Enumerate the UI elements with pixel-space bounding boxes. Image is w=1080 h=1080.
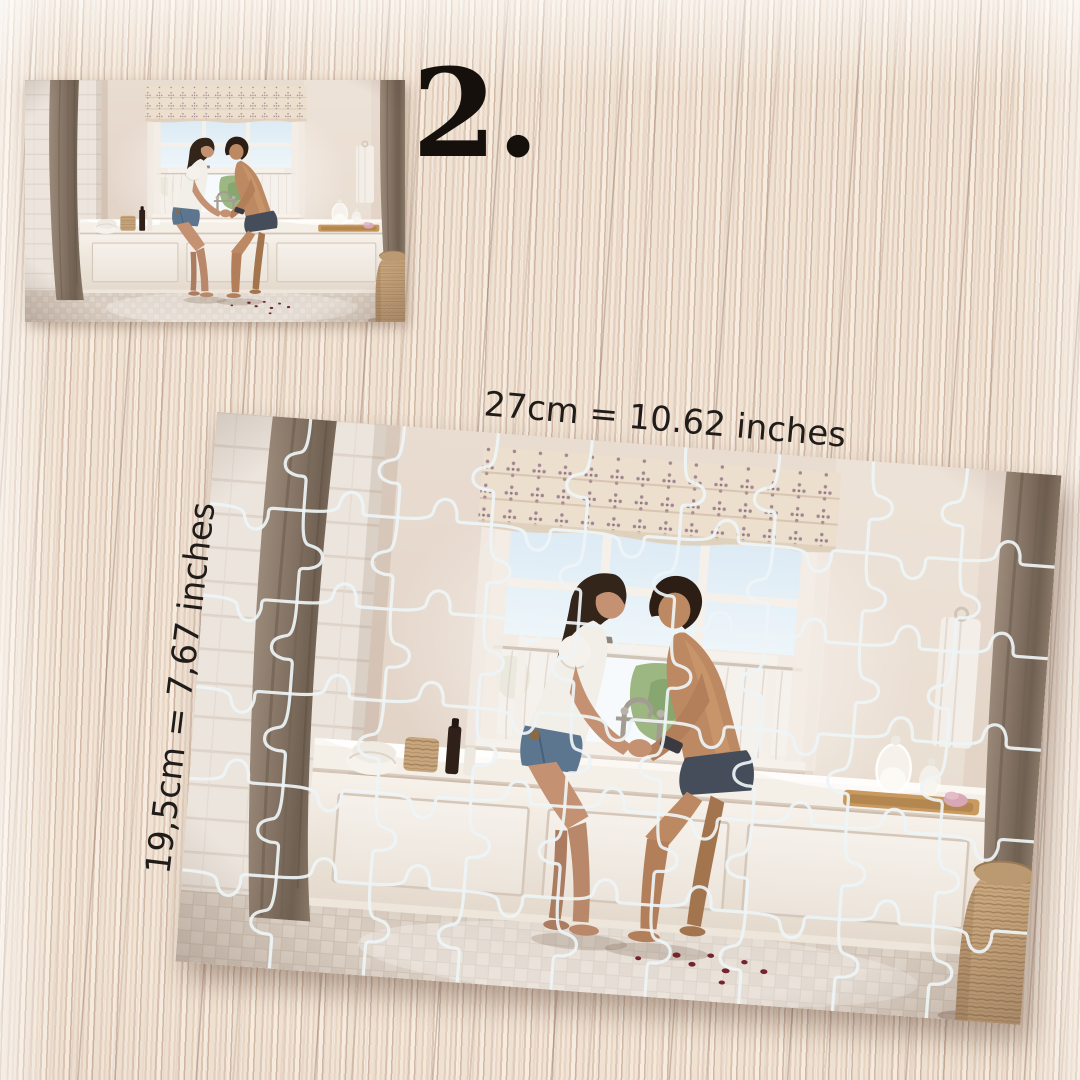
jigsaw-grid xyxy=(176,412,1062,1025)
step-number: 2. xyxy=(412,52,539,174)
puzzle-preview xyxy=(176,412,1062,1025)
original-photo xyxy=(25,80,405,322)
bathroom-photo-small xyxy=(25,80,405,322)
product-mockup: 2. 27cm = 10.62 inches 19,5cm = 7,67 inc… xyxy=(0,0,1080,1080)
